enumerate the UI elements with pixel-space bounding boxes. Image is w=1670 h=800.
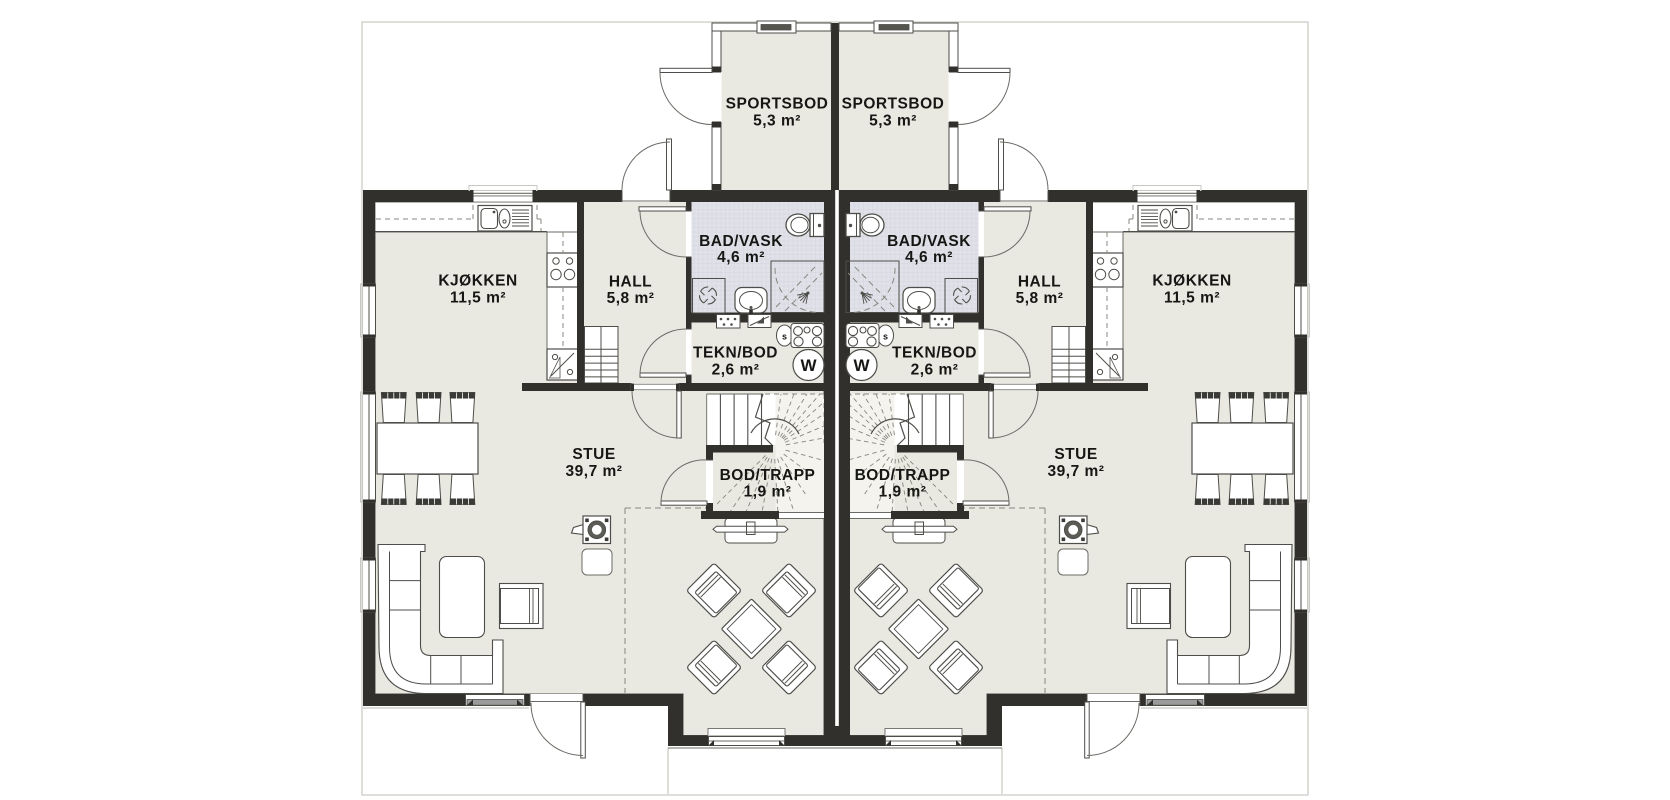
svg-text:BOD/TRAPP: BOD/TRAPP: [720, 467, 816, 484]
svg-text:KJØKKEN: KJØKKEN: [438, 273, 517, 290]
svg-text:4,6 m²: 4,6 m²: [717, 249, 765, 266]
svg-text:W: W: [853, 356, 870, 375]
svg-text:5,3 m²: 5,3 m²: [753, 113, 801, 130]
svg-text:5,8 m²: 5,8 m²: [1016, 290, 1064, 307]
svg-text:4,6 m²: 4,6 m²: [905, 249, 953, 266]
svg-text:1,9 m²: 1,9 m²: [744, 484, 792, 501]
svg-text:HALL: HALL: [609, 274, 652, 291]
svg-text:TEKN/BOD: TEKN/BOD: [892, 345, 977, 362]
svg-text:2,6 m²: 2,6 m²: [712, 362, 760, 379]
svg-text:BAD/VASK: BAD/VASK: [699, 233, 783, 250]
svg-text:SPORTSBOD: SPORTSBOD: [842, 96, 945, 113]
svg-text:2,6 m²: 2,6 m²: [911, 362, 959, 379]
svg-text:5,8 m²: 5,8 m²: [607, 290, 655, 307]
svg-text:1,9 m²: 1,9 m²: [879, 484, 927, 501]
svg-text:STUE: STUE: [1054, 446, 1097, 463]
svg-text:STUE: STUE: [572, 446, 615, 463]
svg-text:BAD/VASK: BAD/VASK: [887, 233, 971, 250]
svg-text:11,5 m²: 11,5 m²: [1164, 290, 1220, 307]
svg-text:SPORTSBOD: SPORTSBOD: [726, 96, 829, 113]
svg-text:11,5 m²: 11,5 m²: [450, 290, 506, 307]
svg-text:W: W: [800, 356, 817, 375]
svg-text:TEKN/BOD: TEKN/BOD: [693, 345, 778, 362]
svg-text:BOD/TRAPP: BOD/TRAPP: [855, 467, 951, 484]
svg-text:5,3 m²: 5,3 m²: [869, 113, 917, 130]
svg-text:KJØKKEN: KJØKKEN: [1152, 273, 1231, 290]
svg-text:s: s: [782, 332, 787, 342]
svg-text:39,7 m²: 39,7 m²: [1048, 463, 1105, 480]
svg-text:s: s: [883, 332, 888, 342]
svg-text:HALL: HALL: [1018, 274, 1061, 291]
svg-text:39,7 m²: 39,7 m²: [566, 463, 623, 480]
